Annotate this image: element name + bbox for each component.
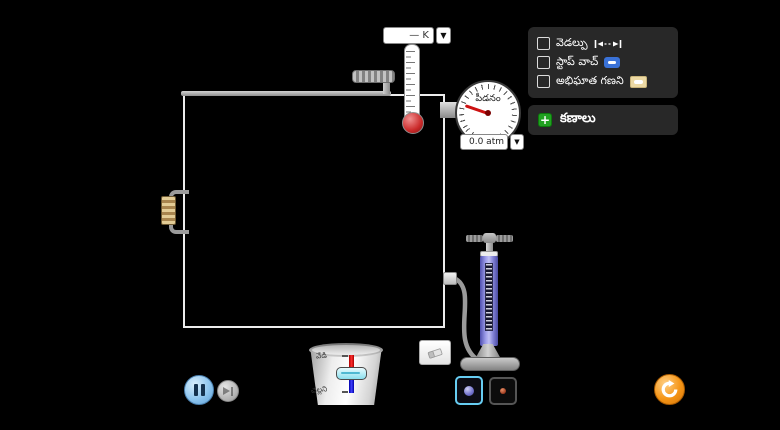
temperature-unit-dropdown[interactable]: ▼	[436, 27, 451, 44]
temperature-value: — K	[409, 30, 429, 41]
heater-min-tick	[342, 391, 348, 393]
stopwatch-label: స్టాప్ వాచ్	[556, 55, 598, 71]
pump-handle-grip	[496, 235, 513, 242]
pump-handle[interactable]	[483, 233, 496, 243]
heater-cooler-bucket: వేడి చల్లని	[309, 343, 383, 405]
width-icon	[594, 39, 622, 49]
hose-port	[443, 272, 457, 285]
width-checkbox-row: వెడల్పు	[537, 34, 669, 53]
thermometer-tube	[404, 44, 420, 122]
gauge-center-cap	[485, 110, 491, 116]
pump-gauge-window	[485, 263, 493, 331]
reset-all-button[interactable]	[654, 374, 685, 405]
width-label: వెడల్పు	[556, 36, 588, 52]
tools-panel: వెడల్పు స్టాప్ వాచ్ అభిఘాత గణని	[528, 27, 678, 98]
step-forward-button[interactable]	[217, 380, 239, 402]
light-particle-icon	[500, 388, 506, 394]
temperature-readout: — K	[383, 27, 434, 44]
light-particle-button[interactable]	[489, 377, 517, 405]
pressure-value: 0.0 atm	[469, 137, 504, 147]
pump-handle-grip	[466, 235, 483, 242]
width-checkbox[interactable]	[537, 37, 550, 50]
simulation-stage: — K ▼ పీడనం 0.0 atm ▼ వెడల్పు	[0, 0, 780, 430]
expand-plus-icon[interactable]: +	[538, 113, 552, 127]
pressure-unit-dropdown[interactable]: ▼	[510, 134, 524, 150]
pause-icon	[194, 384, 198, 396]
thermometer-major-ticks	[406, 51, 415, 118]
pump-base	[460, 357, 520, 371]
stopwatch-checkbox[interactable]	[537, 56, 550, 69]
heat-label: వేడి	[316, 351, 328, 363]
step-forward-icon	[223, 387, 233, 396]
chevron-down-icon: ▼	[440, 31, 446, 40]
stopwatch-checkbox-row: స్టాప్ వాచ్	[537, 53, 669, 72]
stopwatch-icon	[604, 57, 620, 68]
heavy-particle-button[interactable]	[455, 376, 483, 405]
collision-counter-checkbox-row: అభిఘాత గణని	[537, 72, 669, 91]
cool-label: చల్లని	[311, 384, 328, 396]
heater-max-tick	[342, 355, 348, 357]
collision-counter-icon	[630, 76, 647, 88]
particles-panel-title: కణాలు	[560, 111, 596, 129]
pause-icon	[201, 384, 205, 396]
collision-counter-checkbox[interactable]	[537, 75, 550, 88]
reset-icon	[660, 380, 679, 399]
pressure-readout: 0.0 atm	[460, 134, 508, 150]
pause-button[interactable]	[184, 375, 214, 405]
erase-particles-button[interactable]	[419, 340, 451, 365]
chevron-down-icon: ▼	[514, 138, 519, 146]
heater-slider-handle[interactable]	[336, 367, 367, 380]
collision-counter-label: అభిఘాత గణని	[556, 74, 624, 90]
heavy-particle-icon	[464, 386, 474, 396]
lid-handle[interactable]	[352, 70, 395, 83]
thermometer-bulb	[402, 112, 424, 134]
particles-panel[interactable]: + కణాలు	[528, 105, 678, 135]
container-lid[interactable]	[181, 91, 391, 96]
container-resize-handle[interactable]	[161, 196, 176, 225]
eraser-icon	[427, 347, 443, 359]
